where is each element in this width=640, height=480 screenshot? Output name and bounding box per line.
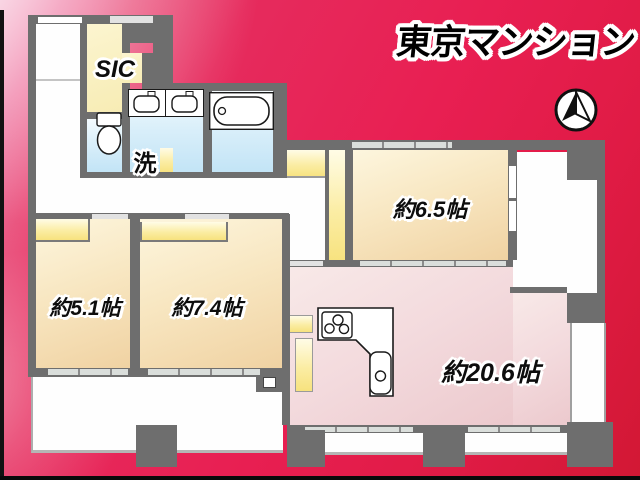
bedroom-window-1 [48,369,128,375]
ldk-window-2 [468,427,560,432]
entrance-area [36,23,81,178]
pillar-top-right [567,150,605,180]
double-washbasin-icon [128,89,204,117]
hall-closet-line [287,176,325,178]
corridor-door-1 [92,214,128,219]
kitchen-sink-icon [370,352,391,394]
room-label-ldk: 約20.6帖 [408,353,573,389]
corridor [35,178,325,215]
bottom-edge-line [0,476,640,480]
kitchen-cabinet-b [295,338,313,392]
closet-51 [35,219,90,242]
entrance-divider-line [36,79,81,81]
floorplan-flyer: SIC 洗 約6.5帖 約5.1帖 約7.4帖 約20.6帖 東京マンション [0,0,640,480]
window-strip-right [570,323,606,425]
room65-right-door-2 [509,201,516,231]
north-compass-icon [553,87,599,133]
left-edge-line [0,10,4,480]
flyer-title: 東京マンション [394,14,637,65]
pillar-mid-right [567,293,605,323]
stove-icon [322,312,352,338]
pillar-bottom-2 [287,430,325,467]
wall-corridor-bottom [28,213,289,219]
pillar-bottom-3 [423,428,465,467]
room-label-51: 約5.1帖 [25,292,145,322]
wall-closet-room65 [345,150,353,262]
wall-ldk-left [282,214,290,425]
wall-step [153,43,173,90]
entrance-door-gap [38,17,82,23]
sic-top-window [110,16,153,23]
corridor-door-2 [185,214,229,219]
room-label-74: 約7.4帖 [147,292,267,322]
wall-entrance-right [80,23,87,178]
hall-arm [288,177,325,263]
room-label-wash: 洗 [120,144,170,178]
pillar-bottom-1 [136,425,177,467]
bathtub-icon [209,92,274,130]
kitchen-counter [316,306,396,398]
room65-sliding-doors [360,261,506,266]
wall-sic-right-top [122,23,130,53]
hall-ldk-opening [290,261,323,266]
wall-hall-closet [325,150,329,263]
room65-top-window [352,142,452,148]
wall-servicebalcony-bottom [510,287,567,293]
bedroom-window-2 [148,369,260,375]
kitchen-cabinet-a [289,315,313,333]
closet-74 [140,222,228,242]
pillar-bottom-right [567,422,613,467]
room-label-sic: SIC [85,56,145,84]
ps-shaft-box [263,377,276,388]
room-label-65: 約6.5帖 [370,192,490,224]
room65-right-door-1 [509,166,516,198]
wall-wet-bottom [80,172,287,178]
wall-left-outer [28,15,36,377]
wall-bath-right [273,83,287,178]
hall-closet-block [287,150,325,177]
closet-column-65 [329,150,345,262]
